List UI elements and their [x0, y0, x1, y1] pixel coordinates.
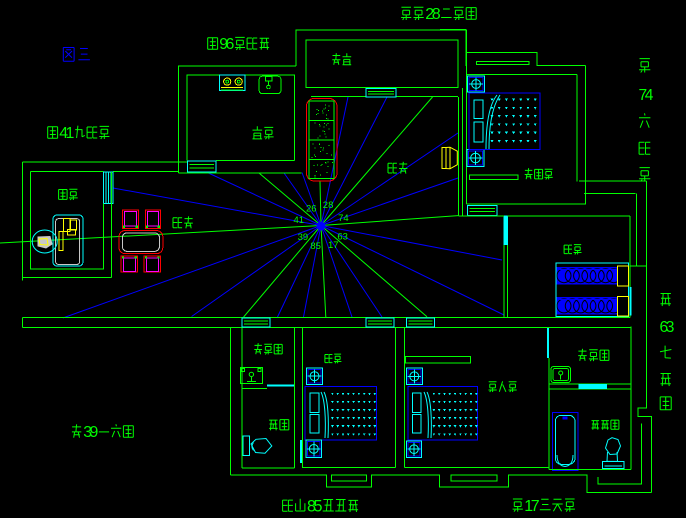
svg-text:85: 85: [310, 241, 321, 252]
svg-text:17: 17: [524, 498, 539, 515]
svg-text:41: 41: [59, 125, 74, 142]
svg-text:28: 28: [425, 5, 440, 23]
svg-text:63: 63: [337, 231, 348, 242]
svg-text:96: 96: [219, 36, 234, 53]
svg-text:63: 63: [660, 319, 675, 336]
svg-text:39: 39: [298, 232, 309, 243]
svg-text:41: 41: [294, 215, 305, 226]
svg-text:26: 26: [306, 204, 317, 215]
svg-text:28: 28: [323, 200, 334, 211]
svg-text:39: 39: [83, 424, 98, 441]
svg-text:74: 74: [338, 213, 349, 224]
svg-text:74: 74: [639, 87, 654, 104]
svg-text:17: 17: [328, 240, 339, 251]
svg-text:85: 85: [307, 498, 323, 516]
